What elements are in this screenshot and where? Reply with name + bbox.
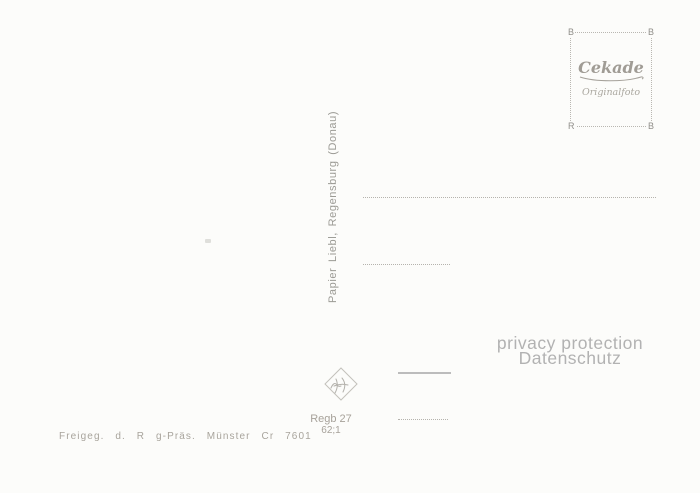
stamp-corner-letter-bottom-right: B — [647, 122, 655, 131]
privacy-watermark: privacy protection Datenschutz — [488, 336, 652, 366]
cekade-brand-logo: Cekade Originalfoto — [573, 50, 649, 106]
censor-approval-text: Freigeg. d. R g-Präs. Münster Cr 7601 — [59, 431, 312, 442]
paper-credit-vertical-text: Papier Liebl, Regensburg (Donau) — [327, 89, 339, 303]
address-line-4 — [398, 419, 448, 420]
stamp-box: B B R B Cekade Originalfoto — [570, 32, 652, 127]
address-line-3 — [398, 372, 451, 374]
address-line-2 — [363, 264, 450, 265]
brand-subtitle-text: Originalfoto — [582, 87, 640, 98]
diamond-script-logo-icon — [323, 366, 359, 402]
stamp-corner-letter-top-left: B — [567, 28, 575, 37]
brand-name-text: Cekade — [578, 58, 644, 77]
paper-speck — [205, 239, 211, 243]
stamp-corner-letter-bottom-left: R — [567, 122, 576, 131]
order-code-line-1: Regb 27 — [300, 414, 362, 425]
privacy-line-de: Datenschutz — [488, 351, 652, 366]
flourish-underline — [580, 77, 643, 81]
address-line-1 — [363, 197, 656, 198]
stamp-corner-letter-top-right: B — [647, 28, 655, 37]
